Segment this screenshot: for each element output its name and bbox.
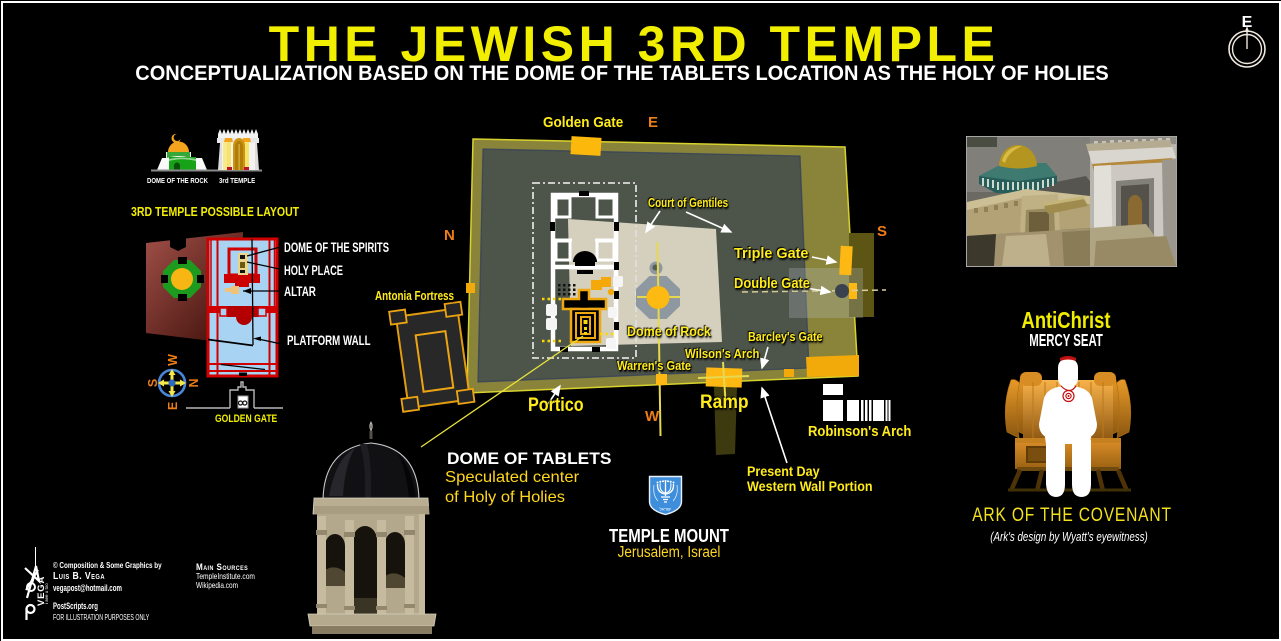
svg-text:S: S bbox=[146, 379, 160, 387]
svg-text:E: E bbox=[166, 402, 180, 410]
svg-text:W: W bbox=[166, 354, 180, 366]
svg-text:ישראל: ישראל bbox=[660, 507, 672, 512]
